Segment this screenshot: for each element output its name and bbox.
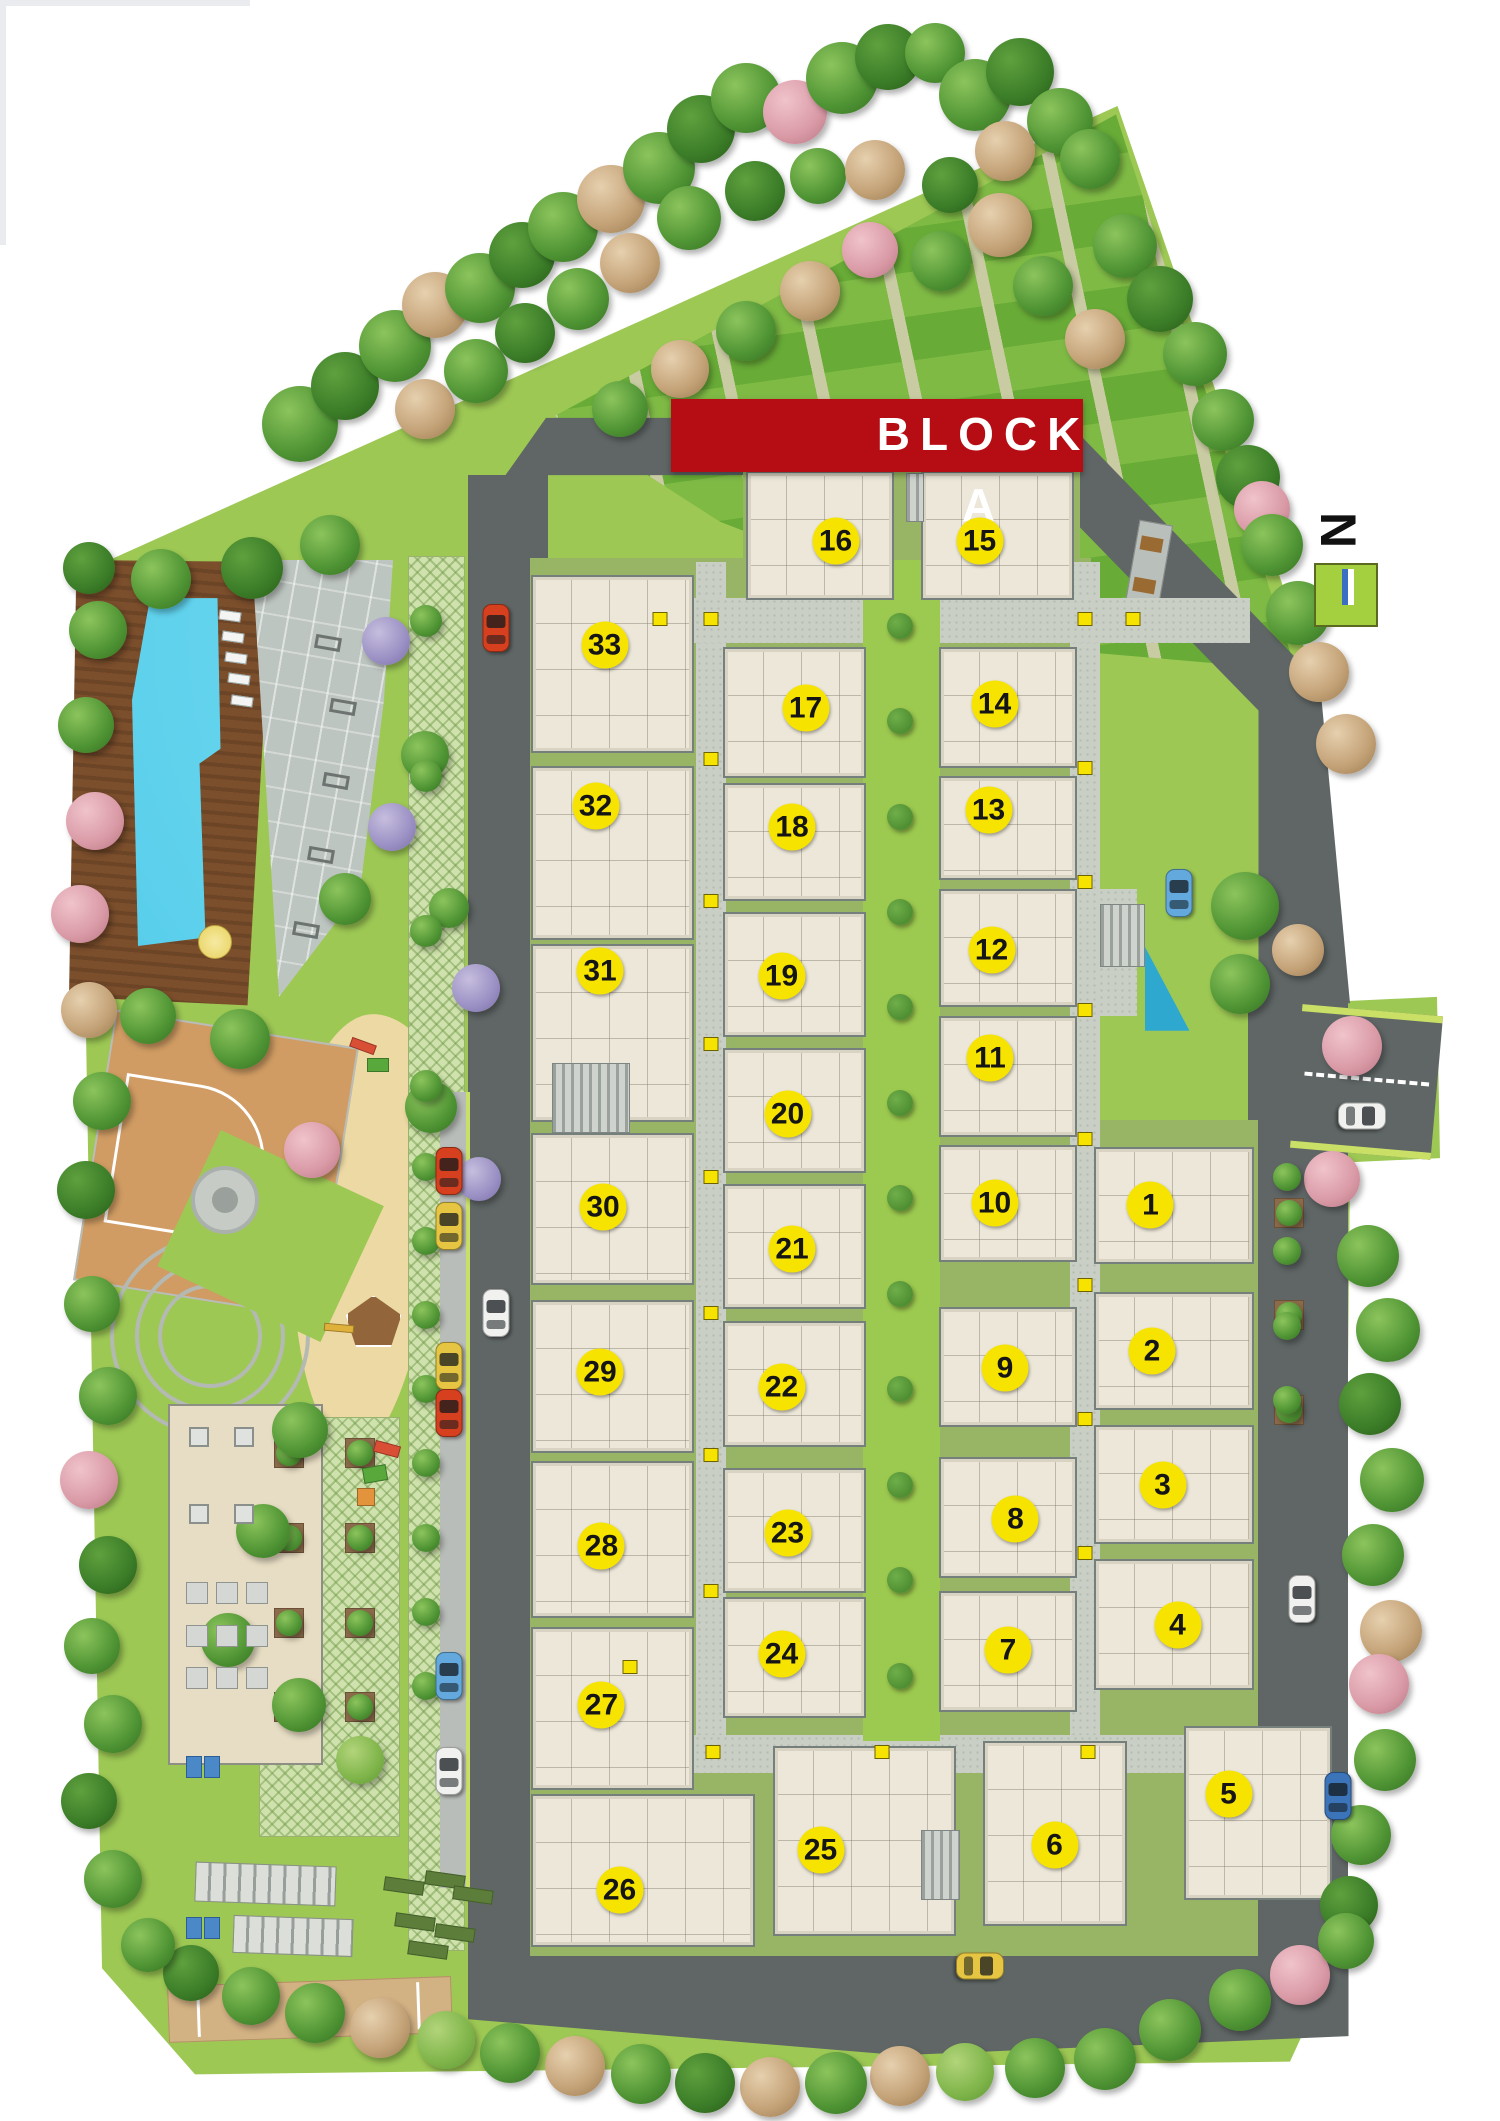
unit-badge: 13 (965, 787, 1012, 834)
path-marker (1077, 612, 1092, 626)
north-symbol-icon (1314, 563, 1378, 627)
path-marker (1077, 761, 1092, 775)
tree-icon (64, 1618, 120, 1674)
tree-icon (975, 121, 1035, 181)
washroom-icon (186, 1756, 202, 1778)
tree-icon (936, 2043, 994, 2101)
tree-icon (922, 157, 978, 213)
tree-icon (210, 1009, 270, 1069)
courtyard-bush (887, 899, 913, 925)
tree-icon (1272, 924, 1324, 976)
tree-icon (1163, 322, 1227, 386)
tree-icon (1273, 1237, 1301, 1265)
tree-icon (410, 1070, 442, 1102)
tree-icon (1192, 389, 1254, 451)
tree-icon (870, 2046, 930, 2106)
unit-badge: 1 (1127, 1181, 1174, 1228)
unit-badge: 19 (758, 952, 805, 999)
hedge-slot (394, 1913, 436, 1932)
hedge-slot (383, 1876, 425, 1895)
unit-badge: 32 (572, 782, 619, 829)
tree-icon (1273, 1386, 1301, 1414)
tree-icon (911, 231, 971, 291)
tree-icon (272, 1402, 328, 1458)
tree-icon (1316, 714, 1376, 774)
unit-badge: 16 (812, 517, 859, 564)
tree-icon (362, 617, 410, 665)
path-marker (704, 1584, 719, 1598)
tree-icon (1127, 266, 1193, 332)
tree-icon (350, 1998, 410, 2058)
unit-badge: 3 (1139, 1461, 1186, 1508)
tree-icon (1304, 1151, 1360, 1207)
tree-icon (131, 549, 191, 609)
building-block (939, 1016, 1077, 1137)
tree-icon (84, 1850, 142, 1908)
building-block (939, 776, 1077, 880)
seating-table-icon (186, 1582, 208, 1604)
path-marker (1077, 1278, 1092, 1292)
path-marker (623, 1660, 638, 1674)
tree-icon (272, 1678, 326, 1732)
path-marker (653, 612, 668, 626)
unit-badge: 8 (992, 1495, 1039, 1542)
washroom-icon (204, 1756, 220, 1778)
play-equipment-icon (362, 1464, 388, 1484)
courtyard-bush (887, 613, 913, 639)
unit-badge: 31 (577, 948, 624, 995)
tree-icon (73, 1072, 131, 1130)
unit-badge: 2 (1129, 1328, 1176, 1375)
play-equipment-icon (324, 1322, 355, 1333)
path-marker (1077, 1003, 1092, 1017)
navy-car-icon (1325, 1772, 1352, 1820)
tree-icon (412, 1524, 440, 1552)
unit-badge: 11 (967, 1035, 1014, 1082)
tree-icon (79, 1536, 137, 1594)
tree-icon (657, 186, 721, 250)
tree-icon (1289, 642, 1349, 702)
staircase (1100, 904, 1145, 968)
washroom-icon (204, 1917, 220, 1939)
tree-icon (66, 792, 124, 850)
north-indicator: N (1314, 501, 1384, 631)
tree-icon (805, 2052, 867, 2114)
washroom-icon (186, 1917, 202, 1939)
path-marker (704, 1037, 719, 1051)
unit-badge: 14 (971, 681, 1018, 728)
path-marker (1077, 1412, 1092, 1426)
seating-table-icon (216, 1582, 238, 1604)
planter-tree (347, 1694, 373, 1720)
tree-icon (368, 803, 416, 851)
hedge-slot (434, 1923, 476, 1942)
white-car-icon (1338, 1102, 1386, 1129)
path-marker (1077, 1546, 1092, 1560)
yellow-car-icon (435, 1202, 462, 1250)
tree-icon (1209, 1969, 1271, 2031)
tree-icon (740, 2057, 800, 2117)
courtyard-bush (887, 994, 913, 1020)
tree-icon (592, 381, 648, 437)
unit-badge: 7 (984, 1627, 1031, 1674)
tree-icon (600, 233, 660, 293)
play-equipment-icon (373, 1439, 401, 1457)
unit-badge: 6 (1031, 1822, 1078, 1869)
tree-icon (1339, 1373, 1401, 1435)
unit-badge: 12 (968, 927, 1015, 974)
unit-badge: 26 (596, 1866, 643, 1913)
tree-icon (1273, 1163, 1301, 1191)
table-set-icon (234, 1504, 254, 1524)
tree-icon (480, 2023, 540, 2083)
path-marker (1125, 612, 1140, 626)
hedge-slot (407, 1940, 449, 1959)
courtyard-bush (887, 1090, 913, 1116)
table-set-icon (189, 1427, 209, 1447)
gym-equipment-icon (321, 772, 349, 790)
tree-icon (780, 261, 840, 321)
tree-icon (1060, 129, 1120, 189)
courtyard-bush (887, 1376, 913, 1402)
tree-icon (611, 2044, 671, 2104)
unit-badge: 10 (971, 1179, 1018, 1226)
unit-badge: 27 (578, 1682, 625, 1729)
tree-icon (1360, 1600, 1422, 1662)
tree-icon (1360, 1448, 1424, 1512)
tree-icon (968, 193, 1032, 257)
tree-icon (1065, 309, 1125, 369)
unit-badge: 33 (581, 621, 628, 668)
path-marker (1077, 1132, 1092, 1146)
courtyard-bush (887, 1472, 913, 1498)
unit-badge: 15 (956, 517, 1003, 564)
tree-icon (221, 537, 283, 599)
unit-badge: 30 (580, 1183, 627, 1230)
tree-icon (410, 760, 442, 792)
generated-layer: 1234567891011121314151617181920212223242… (0, 0, 1500, 2121)
white-car-icon (435, 1747, 462, 1795)
tree-icon (1074, 2028, 1136, 2090)
unit-badge: 24 (758, 1631, 805, 1678)
tree-icon (842, 222, 898, 278)
courtyard-bush (887, 1281, 913, 1307)
tree-icon (412, 1449, 440, 1477)
unit-badge: 21 (769, 1226, 816, 1273)
tree-icon (1337, 1225, 1399, 1287)
unit-badge: 29 (577, 1349, 624, 1396)
courtyard-bush (887, 708, 913, 734)
seating-table-icon (186, 1667, 208, 1689)
tree-icon (651, 340, 709, 398)
planter-tree (276, 1610, 302, 1636)
tree-icon (547, 268, 609, 330)
tree-icon (790, 148, 846, 204)
blue-car-icon (435, 1652, 462, 1700)
courtyard-bush (887, 1663, 913, 1689)
tree-icon (1322, 1016, 1382, 1076)
red-car-icon (483, 604, 510, 652)
tree-icon (1139, 1999, 1201, 2061)
blue-car-icon (1166, 869, 1193, 917)
seating-table-icon (216, 1625, 238, 1647)
gym-equipment-icon (306, 846, 334, 864)
seating-table-icon (186, 1625, 208, 1647)
tree-icon (319, 873, 371, 925)
tree-icon (412, 1301, 440, 1329)
tree-icon (84, 1695, 142, 1753)
tree-icon (675, 2053, 735, 2113)
table-set-icon (234, 1427, 254, 1447)
path-marker (704, 1448, 719, 1462)
tree-icon (417, 2011, 475, 2069)
gym-equipment-icon (314, 634, 342, 652)
tree-icon (412, 1598, 440, 1626)
unit-badge: 28 (578, 1523, 625, 1570)
tree-icon (336, 1736, 384, 1784)
tree-icon (1356, 1298, 1420, 1362)
path-marker (704, 752, 719, 766)
planter-tree (347, 1525, 373, 1551)
tree-icon (60, 1451, 118, 1509)
yellow-car-icon (956, 1953, 1004, 1980)
planter-tree (1276, 1200, 1302, 1226)
tree-icon (58, 697, 114, 753)
tree-icon (300, 515, 360, 575)
tree-icon (444, 339, 508, 403)
tree-icon (457, 1157, 501, 1201)
path-marker (705, 1745, 720, 1759)
play-equipment-icon (357, 1488, 375, 1506)
unit-badge: 5 (1205, 1771, 1252, 1818)
hedge-slot (452, 1885, 494, 1904)
yellow-car-icon (435, 1342, 462, 1390)
unit-badge: 20 (764, 1090, 811, 1137)
gym-equipment-icon (291, 920, 319, 938)
unit-badge: 25 (797, 1826, 844, 1873)
seating-table-icon (246, 1667, 268, 1689)
tree-icon (1241, 514, 1303, 576)
tree-icon (57, 1161, 115, 1219)
path-marker (704, 894, 719, 908)
tree-icon (1013, 256, 1073, 316)
play-equipment-icon (349, 1036, 377, 1054)
seating-table-icon (216, 1667, 238, 1689)
tree-icon (1211, 872, 1279, 940)
tree-icon (51, 885, 109, 943)
unit-badge: 4 (1154, 1601, 1201, 1648)
tree-icon (845, 140, 905, 200)
north-letter: N (1309, 511, 1367, 547)
tree-icon (410, 915, 442, 947)
courtyard-bush (887, 1567, 913, 1593)
unit-badge: 9 (982, 1345, 1029, 1392)
tree-icon (1349, 1654, 1409, 1714)
tree-icon (1354, 1729, 1416, 1791)
tree-icon (61, 1773, 117, 1829)
red-car-icon (435, 1147, 462, 1195)
tree-icon (1273, 1312, 1301, 1340)
tree-icon (121, 1918, 175, 1972)
tree-icon (1210, 954, 1270, 1014)
tree-icon (61, 982, 117, 1038)
path-marker (1080, 1745, 1095, 1759)
tree-icon (716, 301, 776, 361)
tree-icon (63, 542, 115, 594)
gym-equipment-icon (329, 698, 357, 716)
tree-icon (545, 2036, 605, 2096)
tree-icon (222, 1967, 280, 2025)
block-title-banner: BLOCK A (671, 399, 1084, 472)
unit-badge: 18 (769, 804, 816, 851)
tree-icon (79, 1367, 137, 1425)
building-block (1184, 1726, 1332, 1900)
play-equipment-icon (367, 1058, 389, 1072)
courtyard-bush (887, 1185, 913, 1211)
planter-tree (347, 1440, 373, 1466)
path-marker (704, 1306, 719, 1320)
tree-icon (69, 601, 127, 659)
unit-badge: 23 (764, 1510, 811, 1557)
unit-badge: 17 (782, 685, 829, 732)
path-marker (704, 612, 719, 626)
planter-tree (347, 1610, 373, 1636)
tree-icon (120, 988, 176, 1044)
tree-icon (285, 1983, 345, 2043)
path-marker (875, 1745, 890, 1759)
building-block (531, 1794, 755, 1947)
path-marker (1077, 875, 1092, 889)
tree-icon (1342, 1524, 1404, 1586)
tree-icon (725, 161, 785, 221)
tree-icon (284, 1122, 340, 1178)
tree-icon (1318, 1913, 1374, 1969)
courtyard-bush (887, 804, 913, 830)
red-car-icon (435, 1389, 462, 1437)
table-set-icon (189, 1504, 209, 1524)
seating-table-icon (246, 1625, 268, 1647)
unit-badge: 22 (758, 1364, 805, 1411)
tree-icon (395, 379, 455, 439)
white-car-icon (1289, 1575, 1316, 1623)
tree-icon (410, 605, 442, 637)
path-marker (704, 1170, 719, 1184)
seating-table-icon (246, 1582, 268, 1604)
staircase (552, 1063, 630, 1133)
site-plan-canvas: 1234567891011121314151617181920212223242… (0, 0, 1500, 2121)
tree-icon (1005, 2038, 1065, 2098)
white-car-icon (483, 1289, 510, 1337)
tree-icon (452, 964, 500, 1012)
tree-icon (495, 303, 555, 363)
staircase (921, 1830, 960, 1900)
tree-icon (64, 1276, 120, 1332)
